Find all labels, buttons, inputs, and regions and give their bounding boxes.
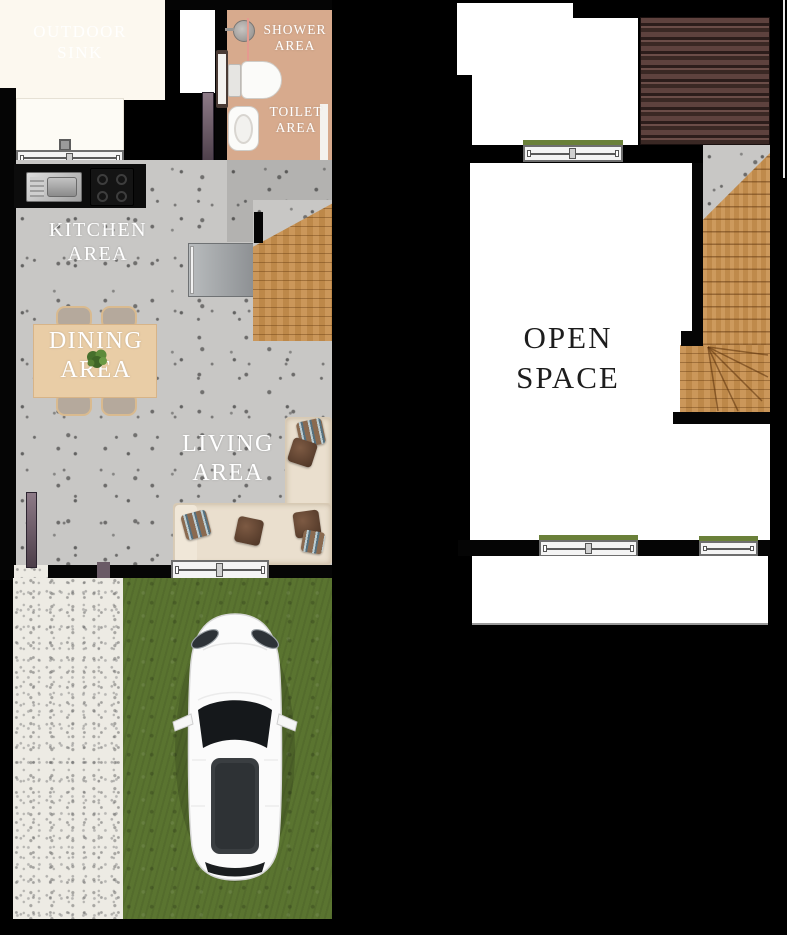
- open-space-label: OPEN SPACE: [468, 318, 668, 397]
- wall: [692, 163, 703, 346]
- window-endcap: [543, 545, 547, 552]
- label-line: SHOWER: [260, 22, 330, 38]
- open-space-room: [673, 424, 770, 540]
- stove-icon: [90, 168, 134, 206]
- window-endcap: [261, 566, 265, 574]
- burner: [116, 191, 127, 202]
- window-endcap: [630, 545, 634, 552]
- label-line: SPACE: [468, 358, 668, 398]
- outdoor-counter: [16, 98, 124, 152]
- living-window-icon: [171, 560, 269, 580]
- window-mullion: [569, 148, 576, 159]
- label-line: AREA: [170, 459, 286, 488]
- burner: [97, 191, 108, 202]
- ground-floor-plan: OUTDOOR SINK: [0, 0, 345, 935]
- upper-landing: [472, 18, 638, 145]
- label-line: AREA: [260, 38, 330, 54]
- door-leaf: [218, 54, 226, 104]
- label-line: TOILET: [262, 104, 330, 120]
- shower-area-label: SHOWER AREA: [260, 22, 330, 55]
- stairs-icon: [253, 200, 332, 341]
- plant-icon: [84, 347, 110, 371]
- edge-line: [783, 0, 785, 178]
- bathroom-door-icon: [216, 50, 228, 108]
- shower-divider: [247, 18, 249, 62]
- refrigerator-icon: [188, 243, 254, 297]
- pillow: [234, 516, 265, 547]
- gravel-path: [13, 578, 123, 919]
- washbasin-icon: [228, 106, 259, 151]
- dining-table-icon: DINING AREA: [33, 324, 157, 398]
- burner: [116, 174, 127, 185]
- car-icon: [168, 610, 302, 886]
- shower-arm: [225, 28, 234, 31]
- window-endcap: [527, 150, 531, 157]
- wall: [0, 88, 16, 580]
- roof-deck: [640, 17, 770, 145]
- wall: [673, 412, 770, 424]
- kitchen-counter: [14, 164, 146, 208]
- shower-head-icon: [233, 20, 255, 42]
- label-line: LIVING: [170, 430, 286, 459]
- stair-winder: [680, 345, 770, 413]
- winder-fan-lines: [680, 345, 770, 413]
- label-line: SINK: [5, 43, 155, 64]
- sink-drainboard: [30, 177, 44, 197]
- label-line: OPEN: [468, 318, 668, 358]
- window-mullion: [216, 563, 223, 577]
- floor-plan-image: OUTDOOR SINK: [0, 0, 787, 935]
- lower-window-icon: [539, 540, 638, 557]
- burner: [97, 174, 108, 185]
- bathroom: SHOWER AREA TOILET AREA: [227, 10, 332, 162]
- outdoor-sink-label: OUTDOOR SINK: [5, 22, 155, 63]
- kitchen-area-label: KITCHEN AREA: [38, 218, 158, 267]
- basin-inner: [234, 114, 253, 144]
- exterior-gap: [180, 0, 216, 93]
- window-endcap: [703, 546, 707, 552]
- label-line: AREA: [38, 242, 158, 266]
- stair-landing: [253, 200, 332, 260]
- window-rail: [703, 548, 754, 550]
- entry-door-icon: [26, 492, 37, 568]
- upper-floor-plan: OPEN SPACE: [440, 0, 787, 660]
- label-line: OUTDOOR: [5, 22, 155, 43]
- toilet-icon: [228, 64, 241, 97]
- sink-bowl: [47, 177, 77, 197]
- living-area-label: LIVING AREA: [170, 430, 286, 489]
- label-line: AREA: [262, 120, 330, 136]
- pillow: [300, 529, 325, 554]
- balcony: [472, 556, 768, 625]
- upper-stairs-icon: [703, 145, 770, 346]
- toilet-bowl: [241, 61, 282, 99]
- wall-stub: [254, 212, 263, 243]
- lower-window-icon: [699, 541, 758, 556]
- wall-stub: [681, 331, 703, 346]
- window-mullion: [585, 543, 592, 554]
- toilet-area-label: TOILET AREA: [262, 104, 330, 137]
- window-endcap: [175, 566, 179, 574]
- upper-window-icon: [523, 145, 623, 162]
- window-endcap: [750, 546, 754, 552]
- back-door-icon: [202, 92, 214, 163]
- kitchen-sink-icon: [26, 172, 82, 202]
- door-jamb: [97, 562, 110, 578]
- stair-landing: [703, 145, 770, 260]
- fridge-handle: [190, 246, 194, 294]
- window-endcap: [615, 150, 619, 157]
- wall: [165, 0, 332, 10]
- label-line: KITCHEN: [38, 218, 158, 242]
